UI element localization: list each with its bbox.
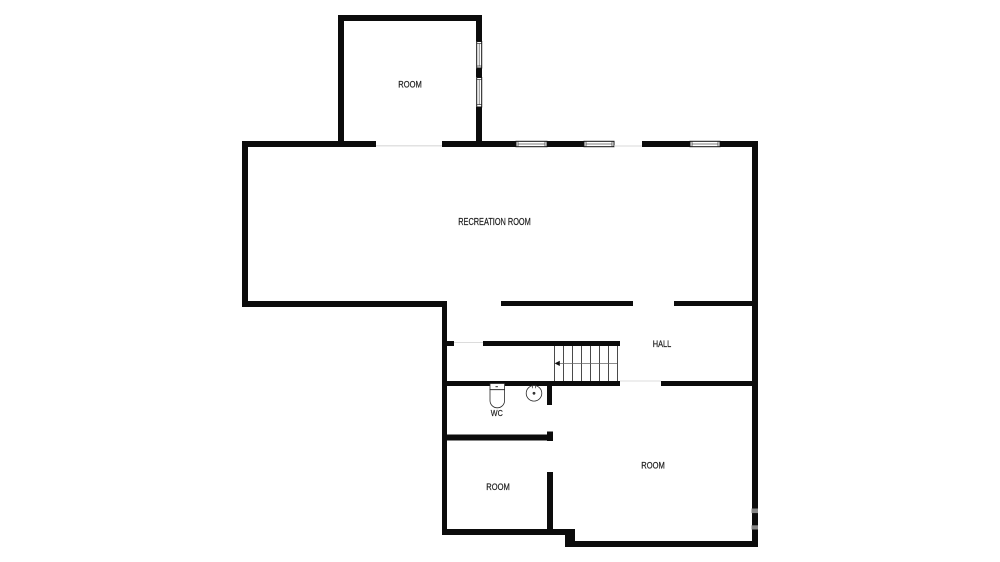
svg-text:ROOM: ROOM <box>641 460 665 470</box>
svg-text:HALL: HALL <box>653 339 672 349</box>
svg-text:RECREATION ROOM: RECREATION ROOM <box>458 217 531 228</box>
svg-text:ROOM: ROOM <box>486 482 510 492</box>
svg-text:WC: WC <box>491 408 503 418</box>
svg-text:ROOM: ROOM <box>398 80 422 90</box>
